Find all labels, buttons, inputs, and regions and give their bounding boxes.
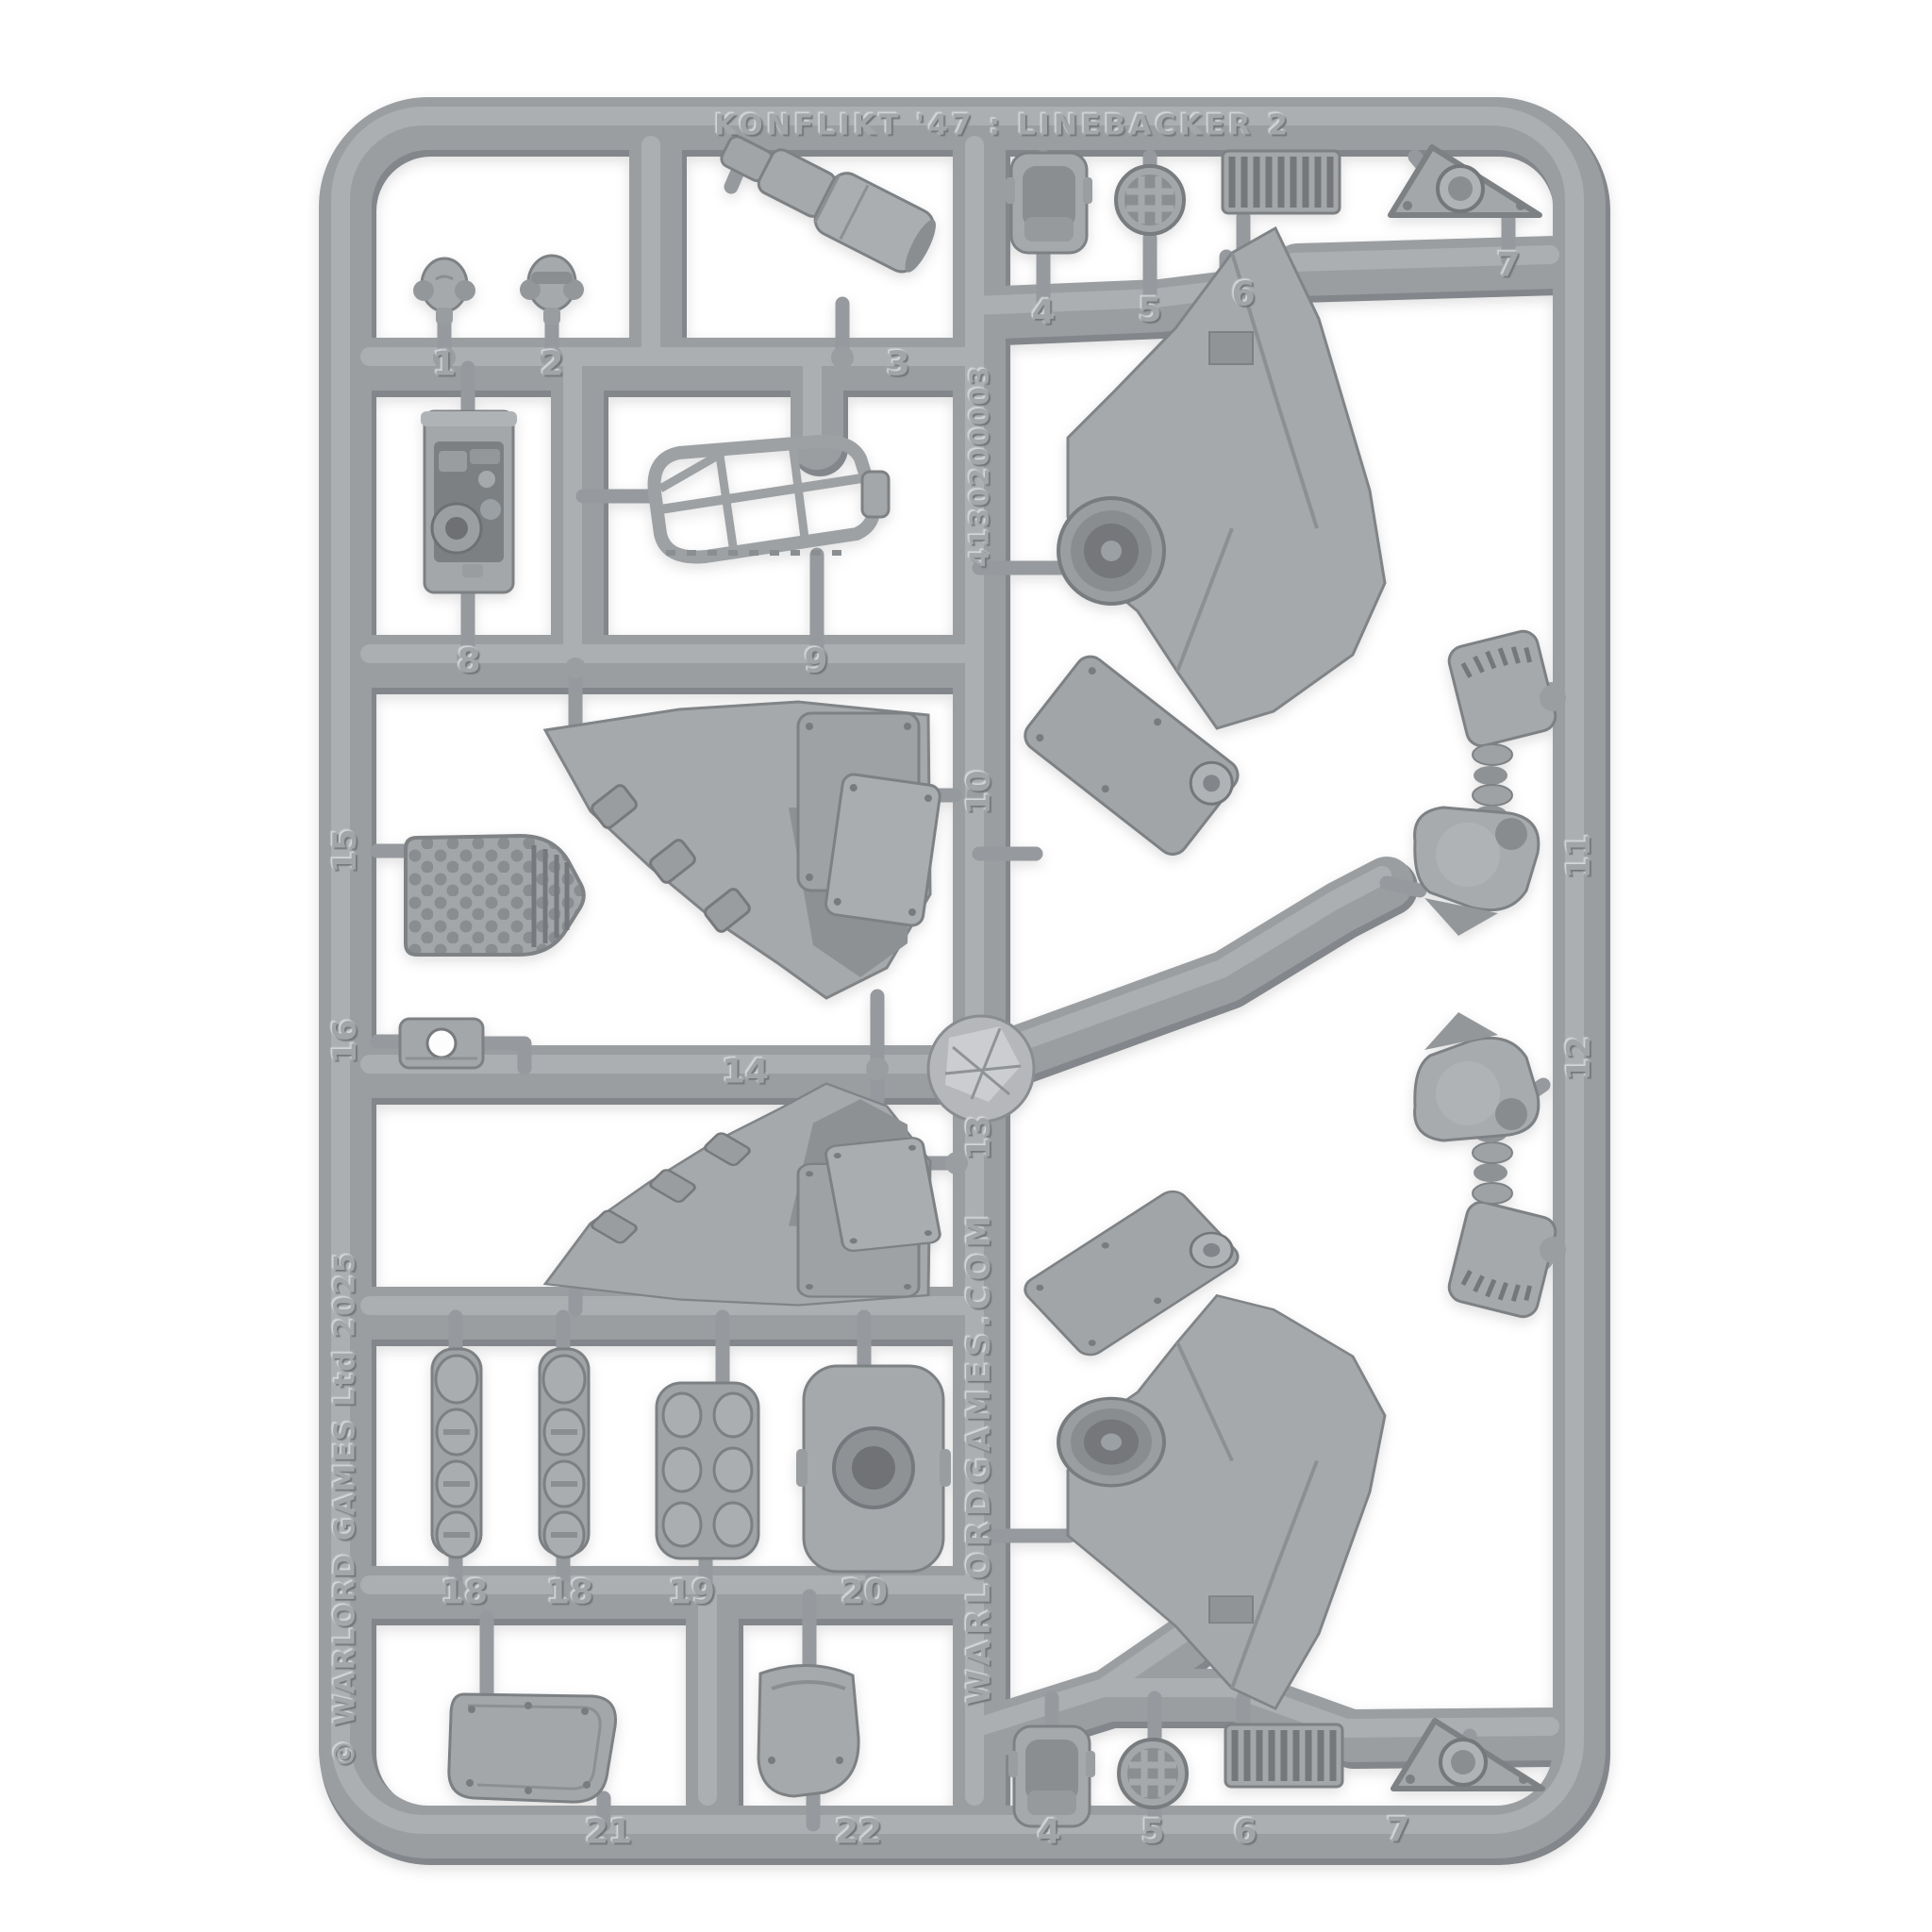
part-19-pad-plate xyxy=(657,1383,758,1558)
sprue-svg: KONFLIKT '47 : LINEBACKER 2 4130200003 W… xyxy=(0,0,1932,1932)
part-number-5: 5 xyxy=(1141,1813,1164,1852)
injection-gate-hub xyxy=(928,1016,1034,1122)
part-22-cowl xyxy=(758,1665,858,1796)
part-6-vent-grille xyxy=(1225,1724,1342,1787)
part-number-11: 11 xyxy=(1560,834,1598,878)
part-number-5: 5 xyxy=(1138,291,1161,330)
part-15-track-grille xyxy=(406,836,584,955)
part-number-6: 6 xyxy=(1233,1813,1257,1852)
part-number-21: 21 xyxy=(585,1813,632,1852)
part-number-13: 13 xyxy=(960,1115,998,1159)
part-number-14: 14 xyxy=(722,1053,769,1091)
part-2-crew-head-goggles xyxy=(520,256,584,325)
part-number-8: 8 xyxy=(457,642,480,681)
part-6-vent-grille xyxy=(1223,151,1340,213)
part-1-crew-head xyxy=(413,258,475,325)
product-code-text: 4130200003 xyxy=(964,365,995,568)
part-number-10: 10 xyxy=(960,770,998,814)
part-5-round-hatch xyxy=(1119,1740,1187,1807)
part-number-6: 6 xyxy=(1231,275,1255,314)
part-21-base-plate xyxy=(449,1694,616,1802)
part-18-track-strip xyxy=(540,1349,589,1557)
part-number-16: 16 xyxy=(326,1019,364,1063)
part-4-seat xyxy=(1008,1726,1095,1826)
part-number-15: 15 xyxy=(326,828,364,873)
part-number-9: 9 xyxy=(804,642,827,681)
part-5-round-hatch xyxy=(1116,166,1184,234)
part-number-18: 18 xyxy=(546,1574,593,1612)
part-number-19: 19 xyxy=(668,1574,715,1612)
part-number-2: 2 xyxy=(540,345,563,384)
part-14-wing-panel xyxy=(545,702,941,998)
part-number-4: 4 xyxy=(1031,293,1055,332)
part-8-engine-block xyxy=(421,411,517,592)
sprue-title-text: KONFLIKT '47 : LINEBACKER 2 xyxy=(714,109,1291,142)
sprue-frame-and-runners: KONFLIKT '47 : LINEBACKER 2 4130200003 W… xyxy=(326,109,1598,1852)
website-text: WARLORDGAMES.COM xyxy=(960,1210,998,1706)
part-17-hull-half xyxy=(1019,1186,1385,1708)
part-number-22: 22 xyxy=(835,1813,882,1852)
part-11-leg-thruster xyxy=(1415,628,1566,936)
part-number-12: 12 xyxy=(1560,1036,1598,1080)
part-number-3: 3 xyxy=(886,345,909,384)
part-number-4: 4 xyxy=(1037,1813,1060,1852)
part-number-7: 7 xyxy=(1496,246,1520,285)
part-12-leg-thruster xyxy=(1415,1012,1566,1320)
part-number-1: 1 xyxy=(432,345,456,384)
part-16-bracket xyxy=(400,1019,483,1068)
copyright-text: © WARLORD GAMES Ltd 2025 xyxy=(329,1251,362,1768)
part-13-wing-panel xyxy=(545,1084,941,1306)
part-20-hatch-ring xyxy=(796,1366,951,1572)
part-number-7: 7 xyxy=(1386,1811,1409,1850)
part-number-20: 20 xyxy=(841,1574,888,1612)
part-4-seat xyxy=(1006,153,1092,253)
part-9-frame-cage xyxy=(655,441,889,558)
part-number-18: 18 xyxy=(441,1574,488,1612)
sprue-photo: KONFLIKT '47 : LINEBACKER 2 4130200003 W… xyxy=(0,0,1932,1932)
part-18-track-strip xyxy=(432,1349,481,1557)
